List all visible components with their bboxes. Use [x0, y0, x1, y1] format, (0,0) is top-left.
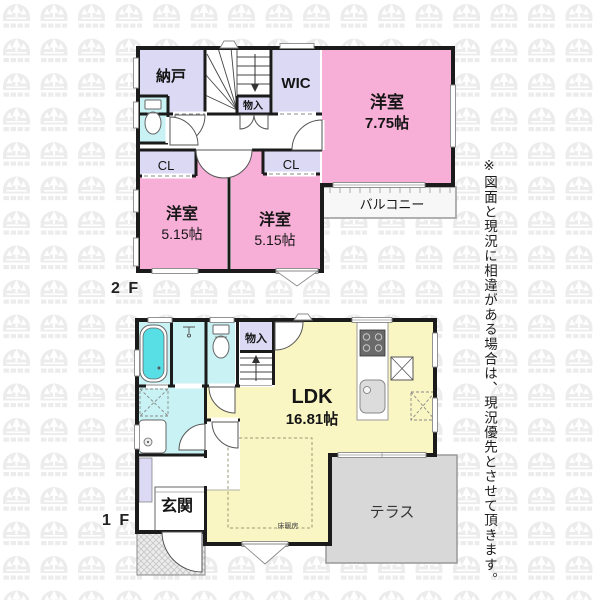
label-ldk-size: 16.81帖 [286, 410, 339, 428]
stove-icon [360, 330, 385, 356]
label-floor-2f: 2 F [111, 280, 140, 298]
label-floor-1f: 1 F [102, 512, 131, 530]
label-main-room-size: 7.75帖 [365, 114, 409, 132]
label-balcony: バルコニー [360, 197, 425, 212]
label-left-room-size: 5.15帖 [161, 226, 202, 242]
floorplan-canvas: 納戸 WIC 物入 洋室 7.75帖 CL CL 洋室 5.15帖 洋室 5.1… [0, 0, 600, 600]
label-genkan: 玄関 [161, 496, 193, 515]
label-monoire-2f: 物入 [243, 99, 263, 112]
bathtub-icon [140, 325, 167, 382]
label-cl-left: CL [158, 158, 175, 173]
label-cl-right: CL [283, 157, 300, 172]
counter-box [391, 357, 413, 380]
kitchen-sink-icon [360, 380, 385, 413]
label-terrace: テラス [370, 504, 415, 521]
label-nando: 納戸 [156, 67, 186, 85]
toilet-icon-1f [213, 325, 229, 358]
shoe-cabinet [139, 458, 152, 502]
label-monoire-1f: 物入 [245, 331, 267, 345]
vanity-sink-icon [139, 420, 166, 453]
label-wic: WIC [281, 75, 310, 92]
toilet-icon-2f [145, 100, 161, 134]
kitchen-counter [357, 322, 388, 420]
label-ldk-name: LDK [291, 386, 333, 408]
floor-1f: LDK 16.81帖 物入 玄関 テラス 床暖房 [135, 314, 458, 575]
label-mid-room-size: 5.15帖 [254, 232, 295, 248]
disclaimer-text: ※図面と現況に相違がある場合は、現況優先とさせて頂きます。 [479, 158, 499, 603]
label-left-room-name: 洋室 [166, 204, 198, 223]
label-main-room-name: 洋室 [370, 92, 404, 112]
label-mid-room-name: 洋室 [259, 210, 291, 229]
label-floor-heating: 床暖房 [278, 521, 299, 530]
